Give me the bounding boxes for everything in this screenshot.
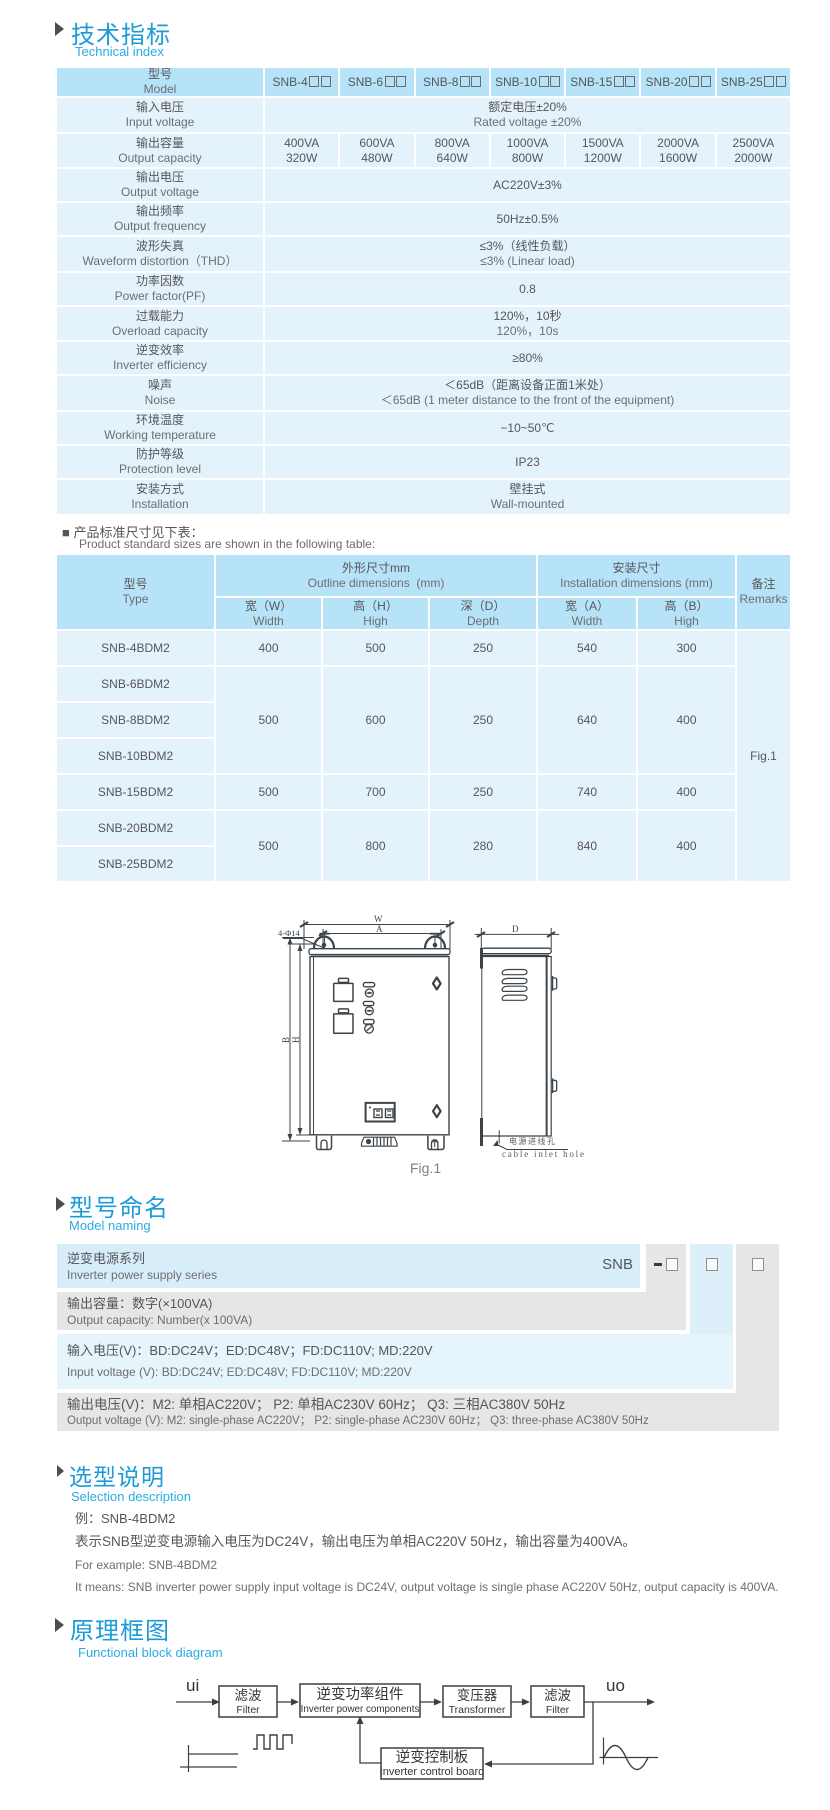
svg-text:ui: ui [186, 1676, 199, 1695]
svg-text:B: B [281, 1037, 291, 1043]
svg-text:D: D [512, 924, 519, 934]
svg-text:A: A [376, 924, 383, 934]
svg-text:Fig.1: Fig.1 [410, 1160, 441, 1176]
svg-text:4-Φ14: 4-Φ14 [278, 928, 301, 938]
svg-text:H: H [291, 1036, 301, 1043]
svg-text:Inverter control board: Inverter control board [380, 1766, 485, 1778]
svg-text:W: W [374, 914, 383, 924]
svg-text:cable inlet hole: cable inlet hole [502, 1149, 586, 1159]
svg-text:滤波: 滤波 [544, 1688, 572, 1703]
svg-text:uo: uo [606, 1676, 625, 1695]
svg-text:Filter: Filter [236, 1704, 260, 1716]
svg-text:Filter: Filter [546, 1704, 570, 1716]
svg-text:逆变控制板: 逆变控制板 [396, 1748, 469, 1766]
svg-text:Transformer: Transformer [449, 1704, 506, 1716]
svg-text:变压器: 变压器 [457, 1688, 498, 1703]
svg-text:Inverter power components: Inverter power components [301, 1704, 420, 1715]
svg-text:电源进线孔: 电源进线孔 [509, 1136, 557, 1146]
svg-text:滤波: 滤波 [235, 1688, 262, 1703]
svg-text:逆变功率组件: 逆变功率组件 [317, 1686, 404, 1703]
